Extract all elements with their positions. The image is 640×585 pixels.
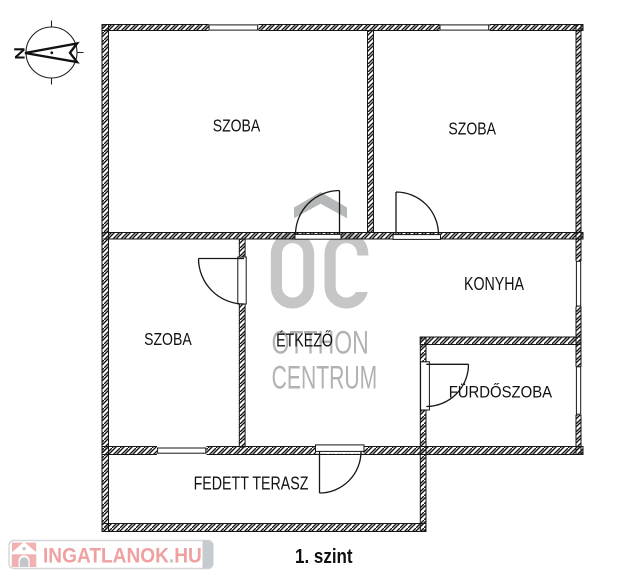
svg-text:ÉTKEZŐ: ÉTKEZŐ bbox=[276, 330, 333, 351]
svg-text:KONYHA: KONYHA bbox=[464, 274, 524, 294]
svg-text:FEDETT TERASZ: FEDETT TERASZ bbox=[194, 474, 309, 494]
svg-text:INGATLANOK.HU: INGATLANOK.HU bbox=[43, 545, 202, 568]
svg-text:CENTRUM: CENTRUM bbox=[272, 359, 378, 396]
svg-text:SZOBA: SZOBA bbox=[213, 116, 261, 136]
svg-text:1. szint: 1. szint bbox=[295, 545, 353, 568]
svg-text:SZOBA: SZOBA bbox=[144, 329, 192, 349]
svg-text:FÜRDŐSZOBA: FÜRDŐSZOBA bbox=[449, 381, 553, 401]
svg-text:SZOBA: SZOBA bbox=[448, 119, 496, 139]
